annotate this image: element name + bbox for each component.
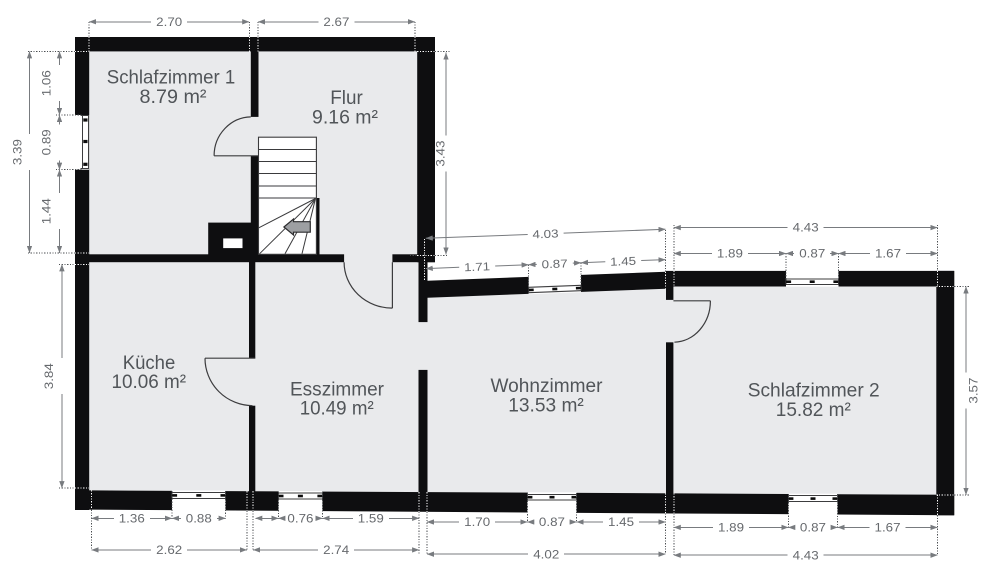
svg-text:15.82 m²: 15.82 m² — [776, 399, 851, 421]
svg-text:3.84: 3.84 — [44, 363, 56, 390]
svg-text:8.79 m²: 8.79 m² — [140, 86, 208, 108]
svg-text:1.45: 1.45 — [608, 517, 634, 529]
svg-text:13.53 m²: 13.53 m² — [508, 395, 584, 417]
svg-text:3.43: 3.43 — [435, 141, 447, 167]
svg-text:Schlafzimmer 1: Schlafzimmer 1 — [107, 66, 236, 88]
svg-text:9.16 m²: 9.16 m² — [312, 106, 379, 128]
svg-text:0.87: 0.87 — [799, 249, 825, 261]
svg-text:1.67: 1.67 — [875, 249, 901, 261]
svg-text:0.89: 0.89 — [42, 129, 54, 155]
svg-text:0.87: 0.87 — [541, 258, 567, 271]
svg-text:1.67: 1.67 — [875, 523, 901, 535]
svg-text:1.70: 1.70 — [464, 517, 490, 529]
svg-text:3.57: 3.57 — [969, 378, 981, 404]
svg-text:1.45: 1.45 — [610, 256, 636, 269]
svg-text:4.03: 4.03 — [532, 228, 558, 241]
svg-text:2.70: 2.70 — [156, 17, 182, 29]
svg-text:1.89: 1.89 — [717, 249, 743, 261]
svg-text:1.06: 1.06 — [42, 70, 54, 96]
svg-text:10.49 m²: 10.49 m² — [300, 398, 374, 420]
svg-text:0.87: 0.87 — [539, 517, 565, 529]
svg-text:3.39: 3.39 — [13, 139, 25, 165]
svg-text:0.87: 0.87 — [800, 523, 826, 535]
svg-text:1.71: 1.71 — [464, 261, 490, 274]
svg-text:0.76: 0.76 — [287, 513, 313, 525]
svg-text:1.89: 1.89 — [718, 523, 744, 535]
svg-text:2.74: 2.74 — [323, 545, 350, 557]
svg-text:4.02: 4.02 — [533, 549, 559, 561]
svg-text:4.43: 4.43 — [793, 550, 819, 562]
svg-text:10.06 m²: 10.06 m² — [112, 371, 187, 393]
svg-text:1.44: 1.44 — [42, 198, 54, 225]
svg-text:2.62: 2.62 — [156, 545, 182, 557]
svg-text:4.43: 4.43 — [793, 223, 819, 235]
svg-text:1.36: 1.36 — [119, 513, 145, 525]
svg-text:1.59: 1.59 — [358, 513, 384, 525]
svg-text:2.67: 2.67 — [323, 17, 349, 29]
svg-text:0.88: 0.88 — [186, 513, 212, 525]
